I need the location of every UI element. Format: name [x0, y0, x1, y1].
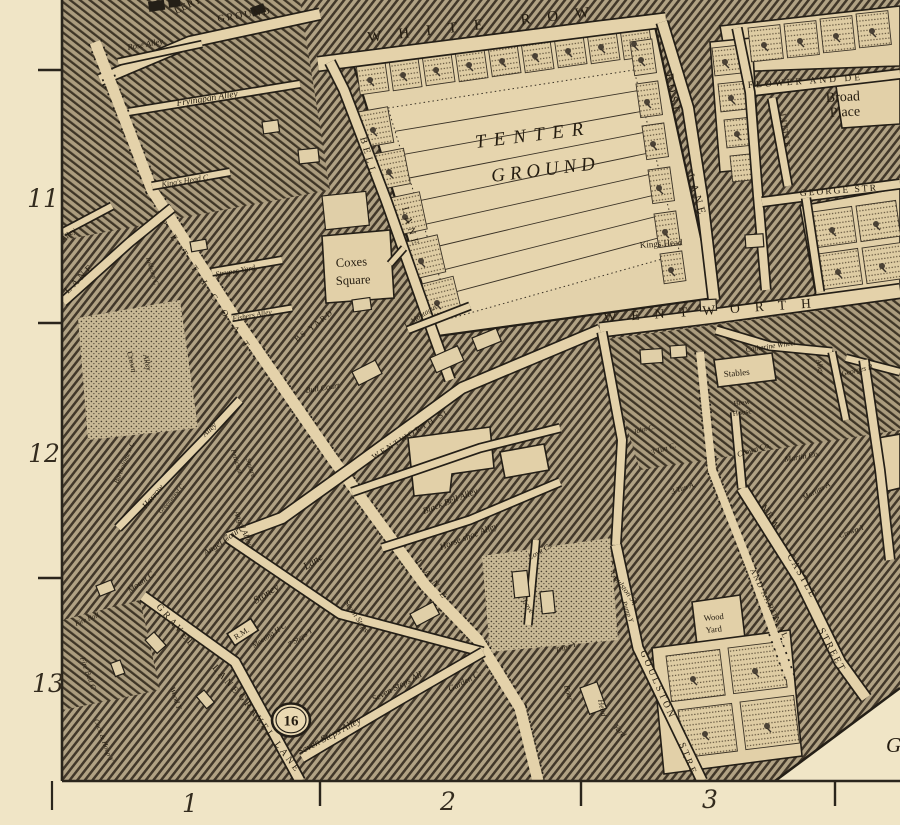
map-label: Square	[335, 272, 371, 288]
building	[262, 120, 280, 134]
garden-plot	[660, 251, 686, 284]
left-margin	[0, 0, 62, 825]
map-label: Broad	[825, 89, 860, 106]
building	[745, 234, 764, 248]
garden-plot	[862, 242, 900, 283]
margin-number: 2	[439, 787, 456, 816]
building	[512, 570, 530, 597]
garden-plot	[818, 248, 863, 289]
building	[540, 591, 555, 614]
map-canvas: 111213123 16 LERYGROUNDWHITE ROWTENTERGR…	[0, 0, 900, 825]
garden-plot	[666, 649, 725, 701]
map-label-group: Coxes	[335, 254, 367, 270]
map-label: Yard	[705, 623, 723, 635]
garden-plot	[642, 123, 669, 160]
garden-plot	[740, 695, 799, 749]
plate-number-badge: 16	[272, 704, 310, 737]
margin-number: 3	[702, 785, 718, 814]
garden-plot	[648, 167, 675, 204]
margin-number: 1	[182, 789, 198, 818]
margin-number: 11	[27, 184, 59, 213]
margin-number: 13	[32, 669, 64, 698]
building	[190, 239, 207, 252]
garden-plot	[636, 81, 663, 118]
map-label: Place	[829, 104, 860, 121]
plate-number: 16	[284, 714, 300, 730]
building	[640, 348, 663, 364]
garden-plot	[856, 200, 900, 241]
map-label: G	[886, 733, 900, 757]
map-label-group: Yard	[705, 623, 723, 635]
map-label-group: Square	[335, 272, 371, 288]
map-label: Coxes	[335, 254, 367, 270]
building	[352, 297, 371, 311]
map-label-group: Broad	[825, 89, 860, 106]
margin-number: 12	[28, 439, 60, 468]
plate-number-badge: 16	[272, 704, 310, 737]
map-label-group: Place	[829, 104, 860, 121]
map-label-group: G	[886, 733, 900, 757]
building	[322, 191, 369, 229]
garden-plot	[812, 206, 857, 247]
building	[670, 345, 687, 358]
map-page: 111213123 16 LERYGROUNDWHITE ROWTENTERGR…	[0, 0, 900, 825]
building	[298, 148, 319, 164]
